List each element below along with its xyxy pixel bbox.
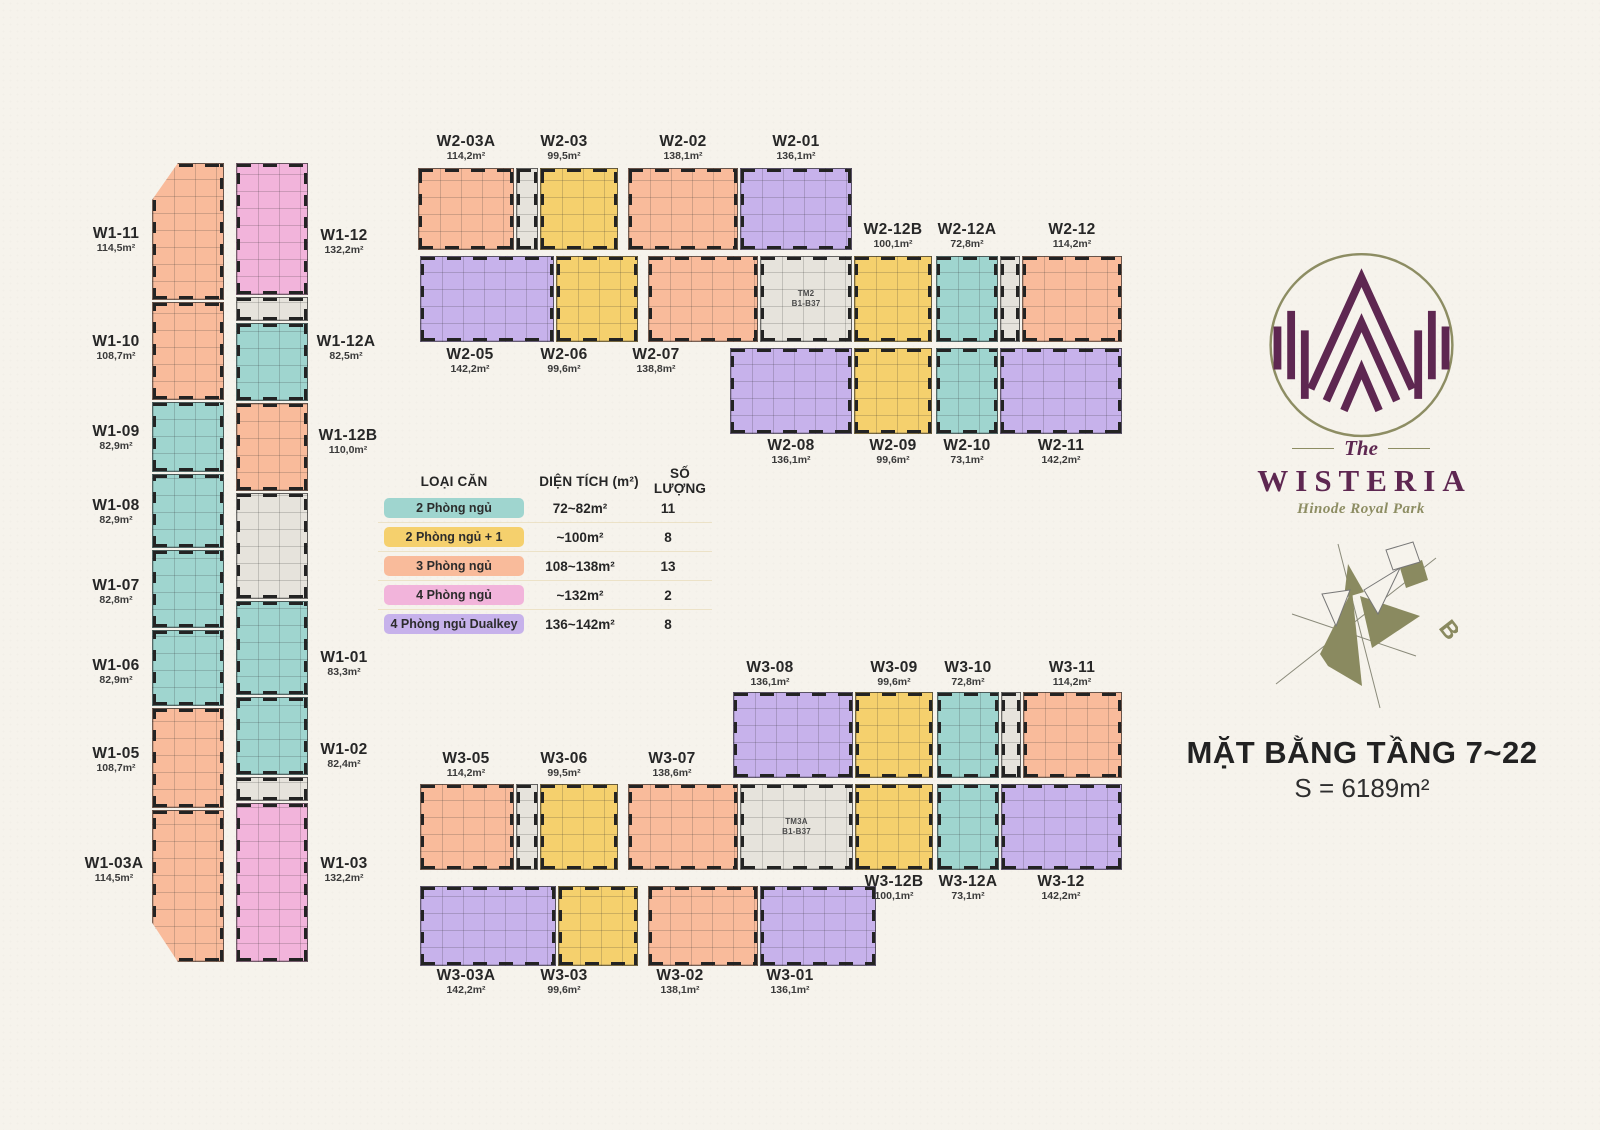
unit-area: 108,7m² [92,762,139,775]
unit-code: W3-03A [437,968,496,984]
core-block: TM2 B1-B37 [760,256,852,342]
unit-w2-12a [936,256,998,342]
unit-label-w2-01: W2-01136,1m² [772,134,819,163]
legend-count: 13 [636,559,700,574]
unit-w3-03 [558,886,638,966]
unit-w3-10 [937,692,999,778]
unit-area: 114,2m² [437,150,496,163]
unit-w1-09 [152,402,224,472]
unit-label-w2-12: W2-12114,2m² [1048,222,1095,251]
unit-code: W2-10 [943,438,990,454]
unit-label-w1-03a: W1-03A114,5m² [85,856,144,885]
unit-label-w1-02: W1-0282,4m² [320,742,367,771]
unit-code: W3-10 [944,660,991,676]
unit-code: W2-03A [437,134,496,150]
legend-row-2br: 2 Phòng ngủ72~82m²11 [378,494,712,523]
unit-code: W2-12A [938,222,997,238]
unit-label-w3-09: W3-0999,6m² [870,660,917,689]
unit-code: W1-11 [93,226,139,242]
core-block [236,297,308,321]
unit-w1-11 [152,163,224,300]
unit-w1-03a [152,810,224,962]
unit-code: W2-03 [540,134,587,150]
unit-w3-12 [1001,784,1122,870]
core-label: TM2 B1-B37 [761,257,851,341]
unit-area: 99,6m² [540,363,587,376]
core-block [516,784,538,870]
unit-code: W2-06 [540,347,587,363]
unit-code: W3-12B [865,874,924,890]
unit-w1-12b [236,403,308,491]
unit-area: 142,2m² [1037,890,1084,903]
unit-area: 114,2m² [1048,238,1095,251]
unit-w2-03 [540,168,618,250]
unit-code: W1-12 [320,228,367,244]
unit-area: 72,8m² [944,676,991,689]
unit-label-w1-12: W1-12132,2m² [320,228,367,257]
unit-area: 138,6m² [648,767,695,780]
unit-label-w1-06: W1-0682,9m² [92,658,139,687]
legend-count: 11 [636,501,700,516]
unit-area: 138,1m² [659,150,706,163]
unit-label-w3-12: W3-12142,2m² [1037,874,1084,903]
unit-area: 138,8m² [632,363,679,376]
unit-w3-01 [760,886,876,966]
unit-w1-03 [236,803,308,962]
unit-code: W3-11 [1049,660,1095,676]
unit-label-w1-12a: W1-12A82,5m² [317,334,376,363]
unit-area: 83,3m² [320,666,367,679]
legend-color-pill: 2 Phòng ngủ + 1 [384,527,524,547]
unit-label-w2-12b: W2-12B100,1m² [864,222,923,251]
unit-label-w2-05: W2-05142,2m² [446,347,493,376]
legend-area-range: 136~142m² [524,617,636,632]
unit-code: W1-06 [92,658,139,674]
unit-label-w1-03: W1-03132,2m² [320,856,367,885]
core-block [236,777,308,801]
unit-label-w3-12b: W3-12B100,1m² [865,874,924,903]
legend-header-type: LOẠI CĂN [378,474,530,489]
unit-label-w1-11: W1-11114,5m² [93,226,139,255]
unit-w2-03a [418,168,514,250]
unit-label-w2-08: W2-08136,1m² [767,438,814,467]
unit-label-w1-12b: W1-12B110,0m² [319,428,378,457]
unit-w1-07 [152,550,224,628]
unit-w1-10 [152,302,224,400]
unit-area: 82,9m² [92,674,139,687]
unit-area: 142,2m² [446,363,493,376]
legend-row-4br: 4 Phòng ngủ~132m²2 [378,581,712,610]
unit-code: W2-11 [1038,438,1084,454]
unit-w1-12a [236,323,308,401]
compass-b-label: B [1433,615,1458,645]
unit-code: W1-09 [92,424,139,440]
unit-label-w2-03a: W2-03A114,2m² [437,134,496,163]
unit-code: W3-01 [766,968,813,984]
unit-w1-06 [152,630,224,706]
legend-area-range: ~100m² [524,530,636,545]
north-arrow-icon: B [1268,536,1458,716]
logo-left-dash [1292,448,1334,449]
unit-w2-07 [648,256,758,342]
legend-count: 8 [636,530,700,545]
unit-label-w2-09: W2-0999,6m² [869,438,916,467]
legend-header-area: DIỆN TÍCH (m²) [530,474,648,489]
unit-area: 82,8m² [92,594,139,607]
legend-row-3br: 3 Phòng ngủ108~138m²13 [378,552,712,581]
legend-color-pill: 2 Phòng ngủ [384,498,524,518]
legend-count: 8 [636,617,700,632]
core-block [1000,256,1020,342]
unit-area: 72,8m² [938,238,997,251]
unit-w3-08 [733,692,853,778]
unit-w2-05 [420,256,554,342]
unit-code: W3-09 [870,660,917,676]
unit-w3-02 [648,886,758,966]
unit-label-w3-02: W3-02138,1m² [656,968,703,997]
unit-area: 100,1m² [865,890,924,903]
unit-w3-07 [628,784,738,870]
core-block: TM3A B1-B37 [740,784,853,870]
unit-area: 110,0m² [319,444,378,457]
unit-area: 114,5m² [85,872,144,885]
unit-label-w1-09: W1-0982,9m² [92,424,139,453]
core-block [236,493,308,599]
legend-count: 2 [636,588,700,603]
legend-area-range: ~132m² [524,588,636,603]
logo-tagline: Hinode Royal Park [1225,501,1497,518]
unit-area: 82,9m² [92,514,139,527]
unit-w3-05 [420,784,514,870]
unit-w1-01 [236,601,308,695]
legend-area-range: 72~82m² [524,501,636,516]
legend-row-dual: 4 Phòng ngủ Dualkey136~142m²8 [378,610,712,638]
unit-w3-06 [540,784,618,870]
unit-code: W3-08 [746,660,793,676]
unit-code: W3-02 [656,968,703,984]
unit-area: 73,1m² [939,890,998,903]
unit-w2-12 [1022,256,1122,342]
legend-header-row: LOẠI CĂN DIỆN TÍCH (m²) SỐ LƯỢNG [378,468,712,494]
logo: The WISTERIA Hinode Royal Park [1225,250,1497,518]
unit-area: 99,5m² [540,767,587,780]
unit-code: W1-08 [92,498,139,514]
unit-area: 99,5m² [540,150,587,163]
unit-w3-12a [937,784,999,870]
logo-name: WISTERIA [1225,463,1497,499]
unit-code: W3-05 [442,751,489,767]
unit-area: 114,2m² [442,767,489,780]
unit-w3-11 [1023,692,1122,778]
unit-label-w3-11: W3-11114,2m² [1049,660,1095,689]
unit-label-w3-01: W3-01136,1m² [766,968,813,997]
unit-area: 108,7m² [92,350,139,363]
unit-code: W3-12 [1037,874,1084,890]
unit-code: W3-06 [540,751,587,767]
unit-area: 138,1m² [656,984,703,997]
unit-w2-09 [854,348,932,434]
unit-area: 142,2m² [437,984,496,997]
unit-code: W1-07 [92,578,139,594]
unit-w2-12b [854,256,932,342]
unit-code: W2-09 [869,438,916,454]
unit-label-w2-02: W2-02138,1m² [659,134,706,163]
unit-code: W2-05 [446,347,493,363]
unit-area: 82,9m² [92,440,139,453]
unit-area: 82,4m² [320,758,367,771]
unit-label-w3-12a: W3-12A73,1m² [939,874,998,903]
unit-label-w2-07: W2-07138,8m² [632,347,679,376]
unit-w3-03a [420,886,556,966]
unit-area: 136,1m² [746,676,793,689]
unit-code: W1-05 [92,746,139,762]
unit-label-w1-08: W1-0882,9m² [92,498,139,527]
unit-area: 136,1m² [766,984,813,997]
unit-area: 82,5m² [317,350,376,363]
unit-w2-10 [936,348,998,434]
unit-area: 114,5m² [93,242,139,255]
legend-area-range: 108~138m² [524,559,636,574]
core-label: TM3A B1-B37 [741,785,852,869]
unit-label-w1-05: W1-05108,7m² [92,746,139,775]
unit-label-w3-05: W3-05114,2m² [442,751,489,780]
core-block [516,168,538,250]
unit-w2-11 [1000,348,1122,434]
unit-w1-02 [236,697,308,775]
unit-label-w1-10: W1-10108,7m² [92,334,139,363]
unit-w1-12 [236,163,308,295]
unit-code: W3-12A [939,874,998,890]
unit-code: W3-03 [540,968,587,984]
floorplan-poster: TM2 B1-B37TM3A B1-B37W1-11114,5m²W1-1010… [0,0,1600,1130]
unit-label-w2-06: W2-0699,6m² [540,347,587,376]
legend-table: LOẠI CĂN DIỆN TÍCH (m²) SỐ LƯỢNG 2 Phòng… [378,468,712,638]
legend-row-2br1: 2 Phòng ngủ + 1~100m²8 [378,523,712,552]
legend-color-pill: 4 Phòng ngủ [384,585,524,605]
legend-color-pill: 4 Phòng ngủ Dualkey [384,614,524,634]
unit-code: W1-02 [320,742,367,758]
unit-label-w3-03a: W3-03A142,2m² [437,968,496,997]
unit-label-w2-10: W2-1073,1m² [943,438,990,467]
unit-label-w3-10: W3-1072,8m² [944,660,991,689]
unit-w1-08 [152,474,224,548]
unit-w3-09 [855,692,933,778]
unit-code: W1-12B [319,428,378,444]
unit-code: W2-07 [632,347,679,363]
unit-area: 142,2m² [1038,454,1084,467]
unit-w1-05 [152,708,224,808]
unit-area: 100,1m² [864,238,923,251]
unit-code: W3-07 [648,751,695,767]
unit-w2-02 [628,168,738,250]
unit-area: 136,1m² [772,150,819,163]
unit-label-w1-07: W1-0782,8m² [92,578,139,607]
unit-area: 99,6m² [869,454,916,467]
unit-code: W1-10 [92,334,139,350]
unit-code: W2-08 [767,438,814,454]
unit-area: 132,2m² [320,244,367,257]
page-title: MẶT BẰNG TẦNG 7~22 [1150,736,1574,770]
unit-w2-08 [730,348,852,434]
unit-label-w2-12a: W2-12A72,8m² [938,222,997,251]
unit-area: 99,6m² [540,984,587,997]
unit-code: W2-12 [1048,222,1095,238]
unit-code: W1-03A [85,856,144,872]
unit-label-w2-03: W2-0399,5m² [540,134,587,163]
unit-code: W1-03 [320,856,367,872]
logo-the-text: The [1344,436,1378,461]
logo-right-dash [1388,448,1430,449]
unit-label-w2-11: W2-11142,2m² [1038,438,1084,467]
unit-area: 114,2m² [1049,676,1095,689]
unit-code: W2-01 [772,134,819,150]
unit-label-w1-01: W1-0183,3m² [320,650,367,679]
unit-label-w3-06: W3-0699,5m² [540,751,587,780]
core-block [1001,692,1021,778]
unit-code: W1-01 [320,650,367,666]
unit-label-w3-03: W3-0399,6m² [540,968,587,997]
unit-label-w3-08: W3-08136,1m² [746,660,793,689]
unit-area: 73,1m² [943,454,990,467]
unit-w2-06 [556,256,638,342]
legend-color-pill: 3 Phòng ngủ [384,556,524,576]
unit-area: 136,1m² [767,454,814,467]
compass: B [1268,536,1458,721]
unit-label-w3-07: W3-07138,6m² [648,751,695,780]
unit-code: W2-02 [659,134,706,150]
unit-w3-12b [855,784,933,870]
unit-w2-01 [740,168,852,250]
page-title-area: S = 6189m² [1150,774,1574,803]
unit-code: W1-12A [317,334,376,350]
logo-the-row: The [1225,436,1497,461]
legend-header-count: SỐ LƯỢNG [648,466,712,496]
unit-area: 99,6m² [870,676,917,689]
unit-area: 132,2m² [320,872,367,885]
wisteria-logo-mark-icon [1254,250,1469,446]
title-block: MẶT BẰNG TẦNG 7~22 S = 6189m² [1150,736,1574,803]
unit-code: W2-12B [864,222,923,238]
legend-rows: 2 Phòng ngủ72~82m²112 Phòng ngủ + 1~100m… [378,494,712,638]
